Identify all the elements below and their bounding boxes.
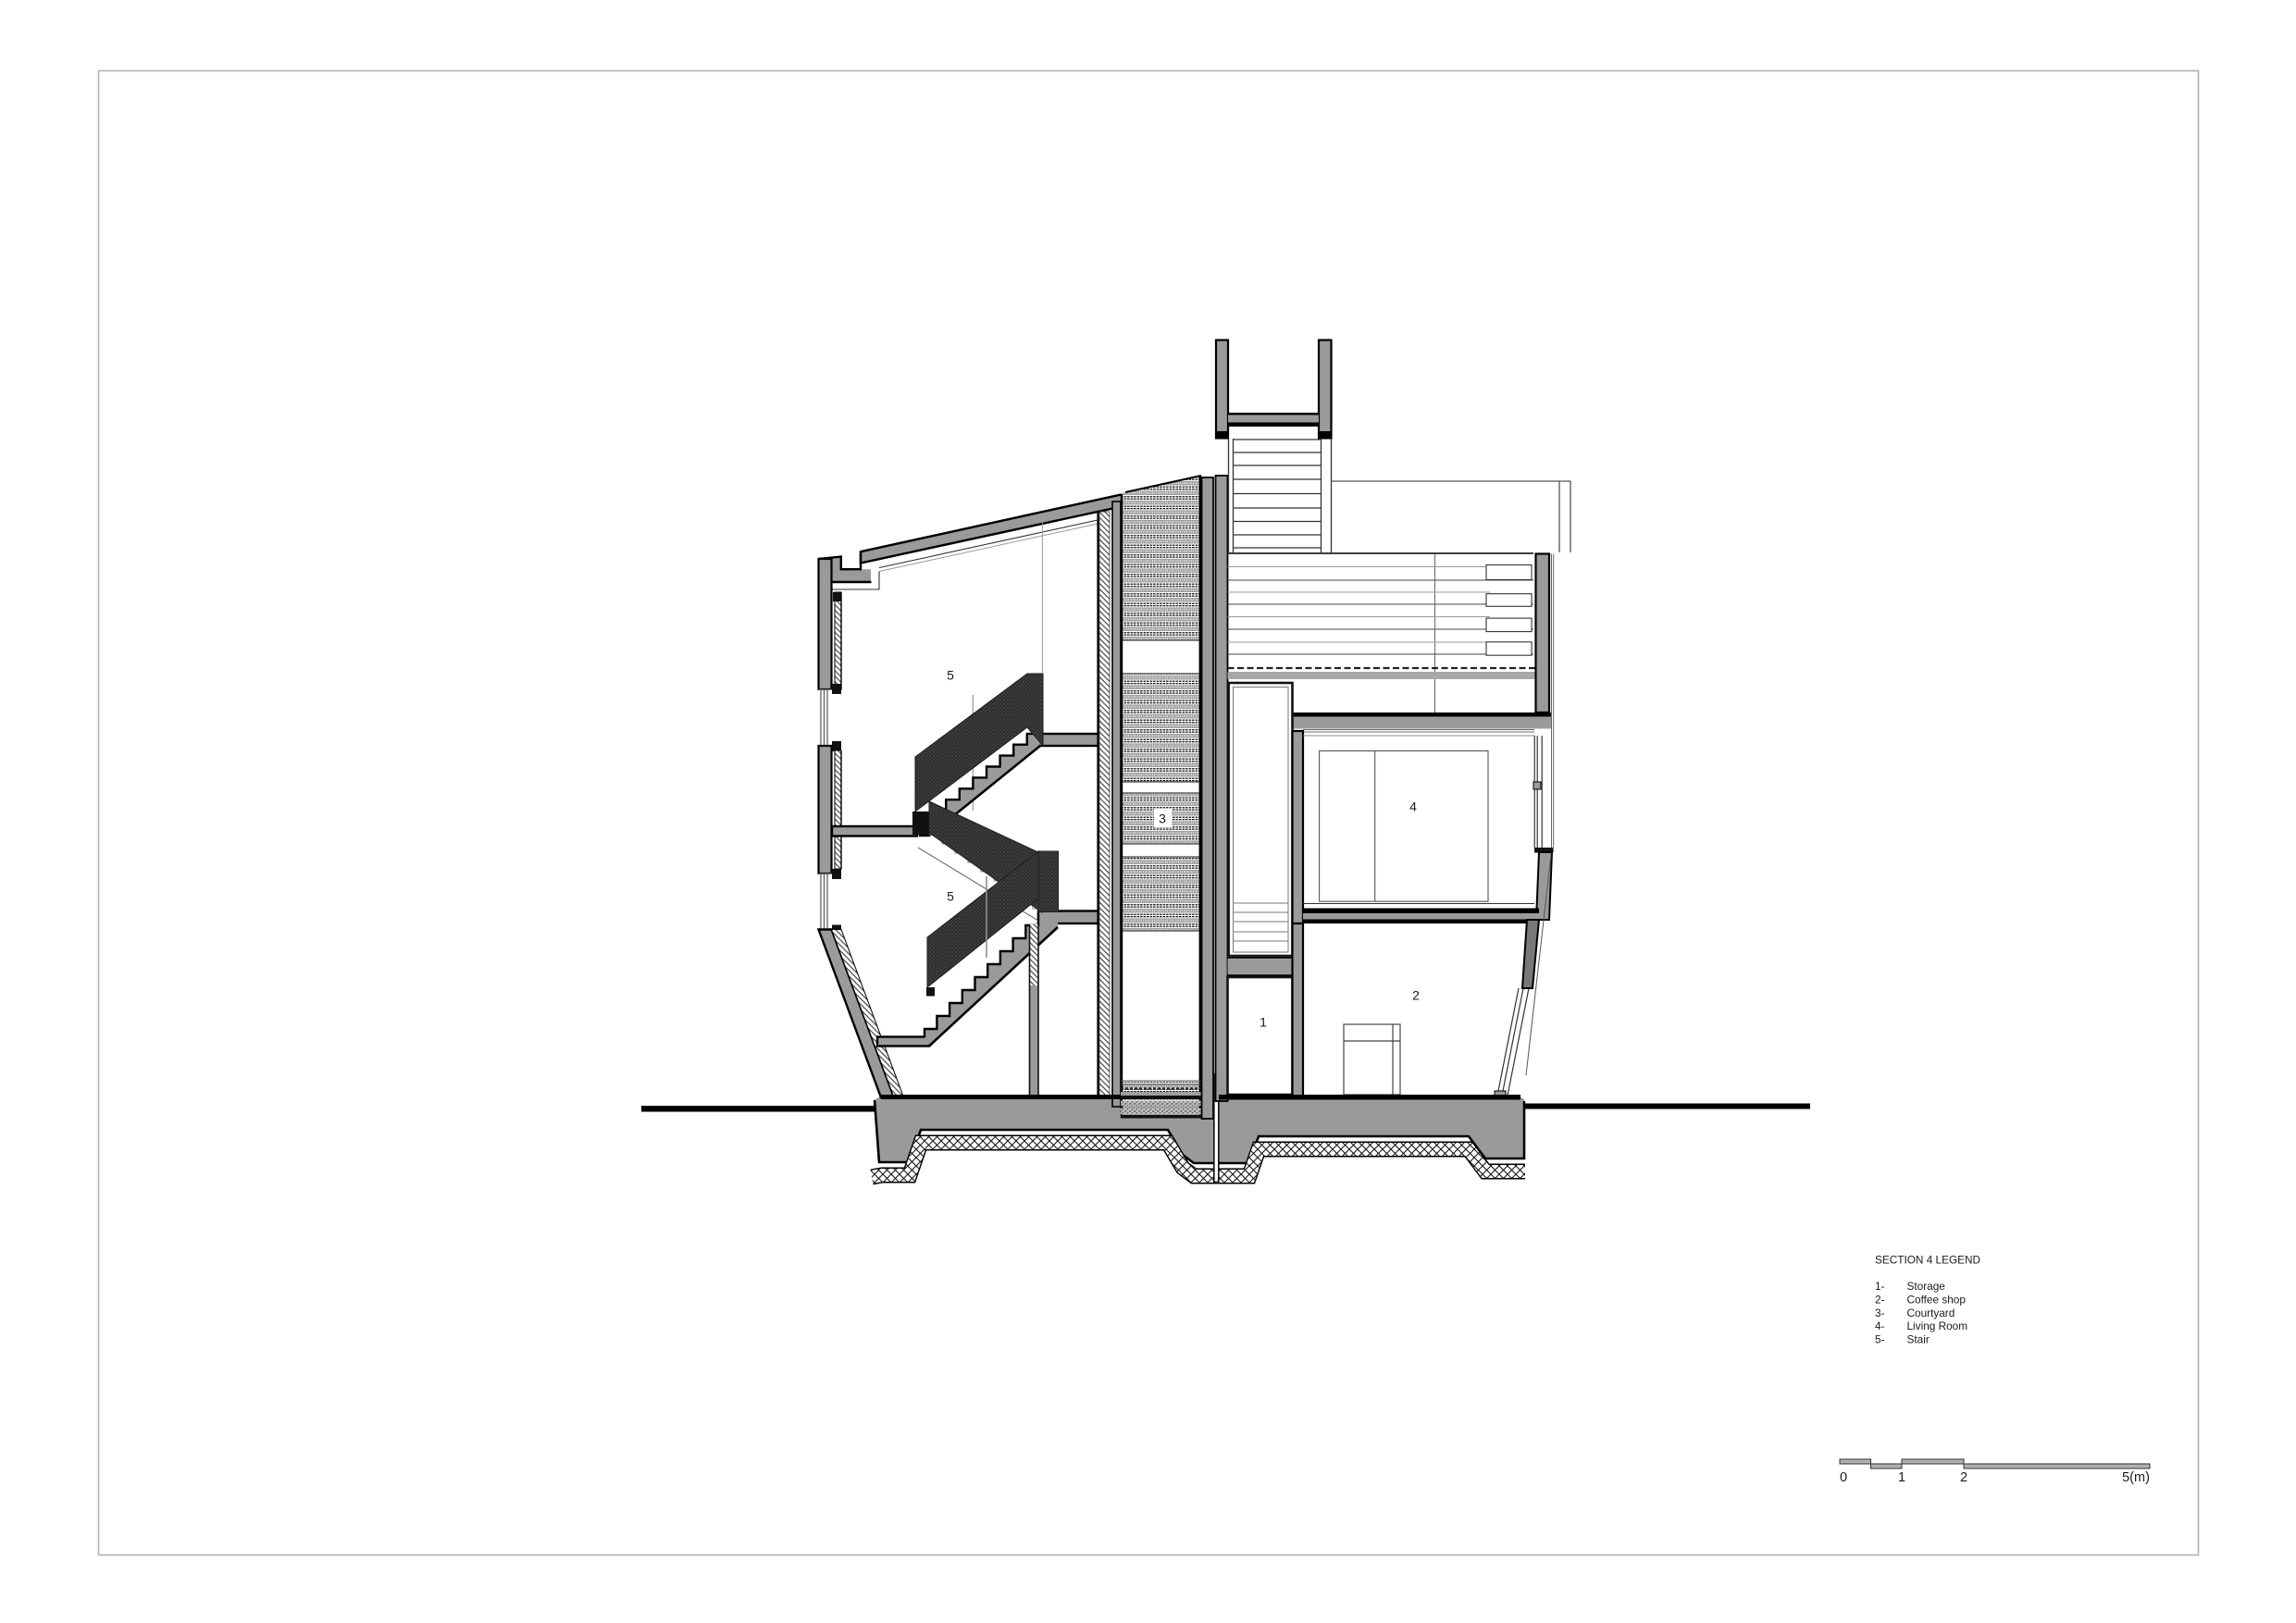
svg-text:2: 2 (1412, 988, 1420, 1003)
svg-text:5(m): 5(m) (2122, 1470, 2150, 1485)
svg-text:4-: 4- (1875, 1319, 1885, 1332)
svg-text:5: 5 (947, 889, 954, 904)
svg-text:1: 1 (1260, 1015, 1267, 1030)
svg-text:Stair: Stair (1907, 1333, 1930, 1346)
svg-text:Coffee shop: Coffee shop (1907, 1293, 1967, 1306)
svg-text:Storage: Storage (1907, 1280, 1946, 1293)
svg-text:3: 3 (1159, 811, 1166, 826)
svg-text:0: 0 (1840, 1470, 1847, 1485)
svg-text:Courtyard: Courtyard (1907, 1307, 1955, 1319)
svg-text:5-: 5- (1875, 1333, 1885, 1346)
svg-text:3-: 3- (1875, 1307, 1885, 1319)
svg-text:1: 1 (1898, 1470, 1905, 1485)
svg-text:SECTION 4 LEGEND: SECTION 4 LEGEND (1875, 1254, 1980, 1267)
svg-text:2-: 2- (1875, 1293, 1885, 1306)
svg-text:2: 2 (1960, 1470, 1967, 1485)
svg-text:5: 5 (947, 668, 954, 683)
svg-text:4: 4 (1409, 799, 1417, 814)
svg-text:Living Room: Living Room (1907, 1319, 1968, 1332)
svg-text:1-: 1- (1875, 1280, 1885, 1293)
